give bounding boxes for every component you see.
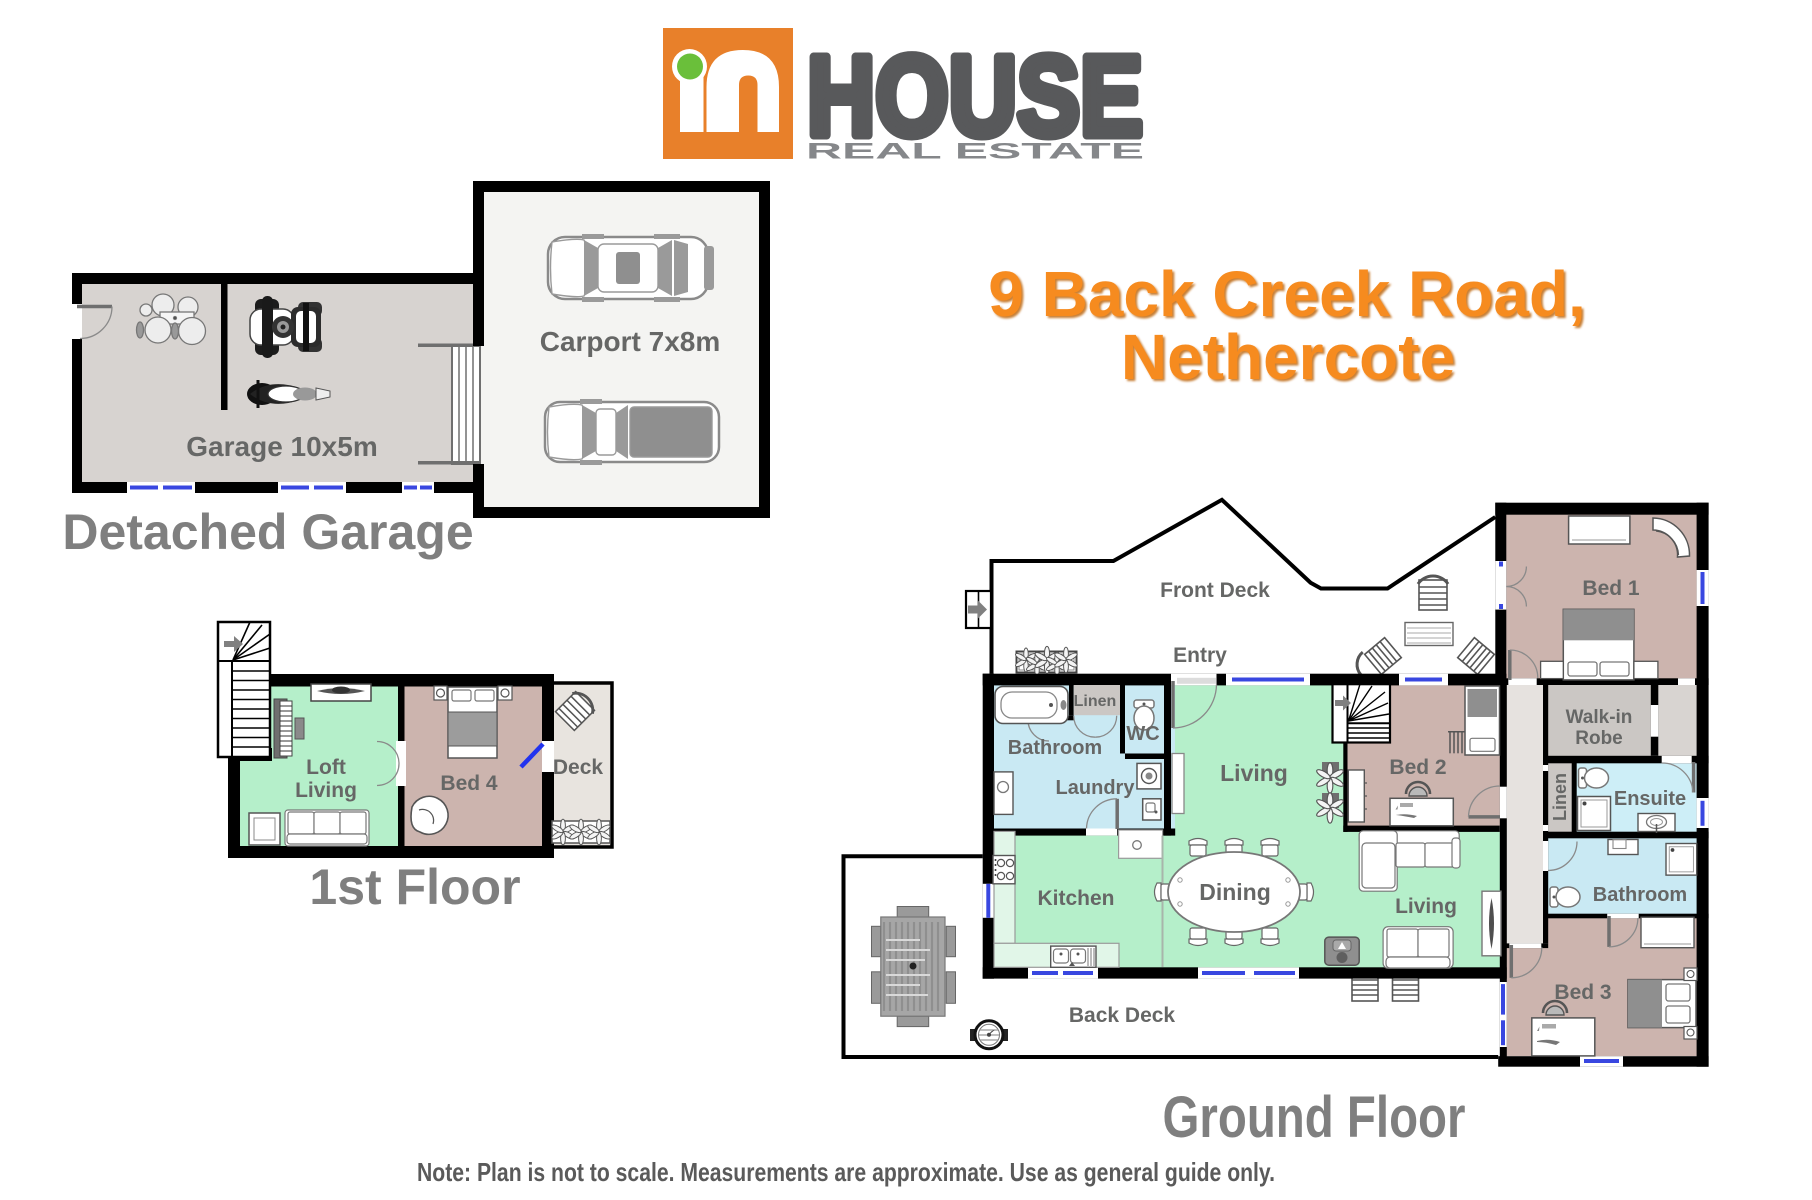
svg-text:Linen: Linen — [1074, 693, 1117, 710]
svg-text:Bed 4: Bed 4 — [440, 772, 498, 795]
svg-text:Note: Plan is not to scale. Me: Note: Plan is not to scale. Measurements… — [417, 1157, 1275, 1187]
svg-text:Bed 2: Bed 2 — [1389, 756, 1446, 779]
svg-text:Ground Floor: Ground Floor — [1163, 1085, 1466, 1150]
svg-text:Walk-in: Walk-in — [1566, 707, 1633, 728]
svg-text:Linen: Linen — [1550, 773, 1570, 821]
svg-text:Garage 10x5m: Garage 10x5m — [186, 431, 377, 462]
svg-text:Entry: Entry — [1173, 644, 1227, 667]
svg-text:Bathroom: Bathroom — [1008, 737, 1102, 759]
svg-text:Bed 1: Bed 1 — [1582, 577, 1640, 600]
svg-text:Bed 3: Bed 3 — [1554, 981, 1611, 1004]
svg-text:Nethercote: Nethercote — [1121, 321, 1455, 393]
svg-text:1st Floor: 1st Floor — [309, 859, 520, 915]
svg-text:Carport 7x8m: Carport 7x8m — [540, 326, 721, 357]
svg-text:Detached Garage: Detached Garage — [62, 504, 473, 560]
svg-text:Laundry: Laundry — [1056, 777, 1136, 799]
svg-text:Dining: Dining — [1199, 879, 1271, 905]
svg-text:REAL ESTATE: REAL ESTATE — [806, 139, 1144, 164]
svg-text:Back Deck: Back Deck — [1069, 1004, 1176, 1027]
svg-text:Living: Living — [1220, 760, 1288, 786]
svg-text:Ensuite: Ensuite — [1614, 788, 1686, 810]
svg-text:Front Deck: Front Deck — [1160, 579, 1270, 602]
svg-text:Living: Living — [295, 779, 357, 802]
svg-text:9 Back Creek Road,: 9 Back Creek Road, — [988, 258, 1586, 330]
svg-text:WC: WC — [1126, 723, 1159, 745]
svg-text:Deck: Deck — [553, 756, 604, 779]
svg-text:Robe: Robe — [1575, 728, 1623, 749]
svg-text:Living: Living — [1395, 895, 1457, 918]
svg-text:Loft: Loft — [306, 756, 346, 779]
svg-text:Kitchen: Kitchen — [1037, 887, 1114, 910]
svg-text:Bathroom: Bathroom — [1593, 884, 1687, 906]
